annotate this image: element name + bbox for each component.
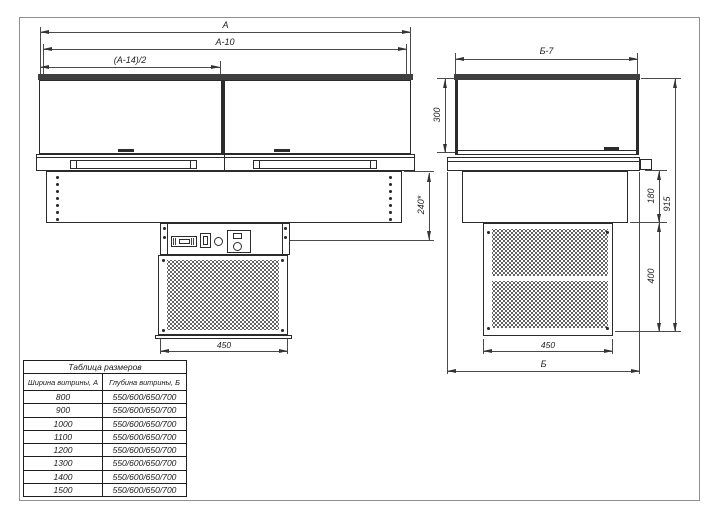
table-row: 1200 550/600/650/700 xyxy=(24,444,186,457)
arrowhead-icon xyxy=(443,79,447,88)
arrowhead-icon xyxy=(402,30,411,34)
arrowhead-icon xyxy=(657,223,661,232)
screw-icon xyxy=(389,197,392,200)
depth-value: 550/600/650/700 xyxy=(103,471,186,483)
depth-value: 550/600/650/700 xyxy=(103,391,186,403)
extension-line xyxy=(447,172,448,374)
table-row: 1400 550/600/650/700 xyxy=(24,471,186,484)
depth-value: 550/600/650/700 xyxy=(103,444,186,456)
extension-line xyxy=(404,171,434,172)
dimension-line-mount-depth xyxy=(429,173,430,240)
controller-display-icon xyxy=(191,238,195,245)
screw-icon xyxy=(389,176,392,179)
glass-box-side xyxy=(455,74,639,155)
control-band-line xyxy=(167,224,168,254)
arrowhead-icon xyxy=(427,173,431,182)
controller-display-icon xyxy=(179,239,190,244)
dimension-line-grille-width xyxy=(160,351,288,352)
arrowhead-icon xyxy=(427,231,431,240)
glass-center-divider xyxy=(221,80,225,154)
depth-value: 550/600/650/700 xyxy=(103,457,186,469)
screw-icon xyxy=(389,204,392,207)
screw-icon xyxy=(606,327,609,330)
dimension-label-grille-width: 450 xyxy=(160,340,288,350)
counter-band-line xyxy=(37,157,414,158)
dimension-line-grille-width xyxy=(483,351,613,352)
table-row: 1500 550/600/650/700 xyxy=(24,484,186,496)
dimension-label-total-height: 915 xyxy=(662,186,672,222)
dimension-label-width: А xyxy=(40,20,411,30)
table-row: 1300 550/600/650/700 xyxy=(24,457,186,470)
glass-front-edge xyxy=(455,80,458,155)
extension-line xyxy=(639,172,640,374)
arrowhead-icon xyxy=(211,65,220,69)
dimension-label-depth: Б xyxy=(447,359,640,369)
grille-mesh xyxy=(492,229,608,276)
screw-icon xyxy=(389,190,392,193)
screw-icon xyxy=(487,327,490,330)
screw-icon xyxy=(56,197,59,200)
glass-top-rail-side xyxy=(454,74,640,80)
slot-end-cap xyxy=(190,161,191,168)
width-value: 1100 xyxy=(24,431,103,443)
arrowhead-icon xyxy=(673,79,677,88)
counter-band-divider xyxy=(224,154,225,171)
width-value: 1500 xyxy=(24,484,103,496)
width-value: 1400 xyxy=(24,471,103,483)
width-value: 1000 xyxy=(24,418,103,430)
indicator-lamp-icon xyxy=(214,237,223,246)
door-track-mark xyxy=(604,147,619,151)
depth-value: 550/600/650/700 xyxy=(103,404,186,416)
screw-icon xyxy=(487,231,490,234)
width-value: 900 xyxy=(24,404,103,416)
control-band-line xyxy=(282,224,283,254)
slot-end-cap xyxy=(370,161,371,168)
dimension-label-condenser-height: 400 xyxy=(646,258,656,294)
size-table-col-width: Ширина витрины, А xyxy=(24,374,103,390)
screw-icon xyxy=(389,218,392,221)
table-row: 1100 550/600/650/700 xyxy=(24,431,186,444)
slot-end-cap xyxy=(259,161,260,168)
screw-icon xyxy=(284,236,287,239)
door-handle-slot xyxy=(70,160,197,169)
dimension-label-body-height: 180 xyxy=(646,178,656,214)
screw-icon xyxy=(56,176,59,179)
dimension-line-half-width xyxy=(40,67,220,68)
screw-icon xyxy=(163,236,166,239)
door-track-mark xyxy=(118,149,134,152)
size-table-title: Таблица размеров xyxy=(24,361,186,374)
screw-icon xyxy=(56,183,59,186)
arrowhead-icon xyxy=(40,30,49,34)
screw-icon xyxy=(389,183,392,186)
screw-icon xyxy=(162,259,165,262)
counter-band-line xyxy=(448,161,639,162)
screw-icon xyxy=(56,190,59,193)
dimension-label-mount-depth: 240* xyxy=(416,185,426,225)
depth-value: 550/600/650/700 xyxy=(103,484,186,496)
arrowhead-icon xyxy=(673,323,677,332)
arrowhead-icon xyxy=(398,47,407,51)
dimension-line-total-height xyxy=(675,79,676,332)
door-track-mark xyxy=(274,149,290,152)
extension-line xyxy=(615,331,681,332)
size-table-col-depth: Глубина витрины, Б xyxy=(103,374,186,390)
arrowhead-icon xyxy=(657,323,661,332)
glass-front-panels xyxy=(39,80,411,154)
dimension-line-depth xyxy=(447,371,640,372)
grille-mesh xyxy=(492,281,608,328)
counter-band-side xyxy=(447,157,640,171)
dimension-label-width-minus10: А-10 xyxy=(43,37,407,47)
dimension-line-condenser-height xyxy=(659,223,660,332)
dimension-label-grille-width: 450 xyxy=(483,340,613,350)
arrowhead-icon xyxy=(443,144,447,153)
screw-icon xyxy=(389,211,392,214)
dimension-line-width xyxy=(40,32,411,33)
screw-icon xyxy=(281,329,284,332)
depth-value: 550/600/650/700 xyxy=(103,431,186,443)
grille-mesh xyxy=(167,260,279,330)
arrowhead-icon xyxy=(455,57,464,61)
screw-icon xyxy=(56,211,59,214)
socket-box-icon xyxy=(233,242,242,251)
grille-base-plate xyxy=(155,335,292,339)
screw-icon xyxy=(56,204,59,207)
arrowhead-icon xyxy=(40,65,49,69)
slot-end-cap xyxy=(76,161,77,168)
extension-line xyxy=(630,222,667,223)
screw-icon xyxy=(162,329,165,332)
socket-box-icon xyxy=(233,233,242,239)
table-row: 800 550/600/650/700 xyxy=(24,391,186,404)
depth-value: 550/600/650/700 xyxy=(103,418,186,430)
table-row: 900 550/600/650/700 xyxy=(24,404,186,417)
width-value: 1300 xyxy=(24,457,103,469)
drop-in-body xyxy=(46,171,402,223)
size-table-header: Ширина витрины, А Глубина витрины, Б xyxy=(24,374,186,391)
rear-bracket xyxy=(640,159,652,170)
extension-line xyxy=(410,27,411,76)
arrowhead-icon xyxy=(657,171,661,180)
screw-icon xyxy=(606,231,609,234)
arrowhead-icon xyxy=(629,57,638,61)
dimension-line-glass-height xyxy=(445,79,446,153)
arrowhead-icon xyxy=(447,369,456,373)
glass-rear-edge xyxy=(636,80,639,155)
screw-icon xyxy=(281,259,284,262)
width-value: 800 xyxy=(24,391,103,403)
table-row: 1000 550/600/650/700 xyxy=(24,418,186,431)
dimension-line-depth-minus7 xyxy=(455,59,638,60)
door-handle-slot xyxy=(253,160,377,169)
extension-line xyxy=(645,170,667,171)
dimension-line-width-minus10 xyxy=(43,49,407,50)
dimension-label-glass-height: 300 xyxy=(432,97,442,133)
screw-icon xyxy=(284,227,287,230)
technical-drawing-sheet: А А-10 (А-14)/2 xyxy=(0,0,720,520)
arrowhead-icon xyxy=(43,47,52,51)
dimension-label-depth-minus7: Б-7 xyxy=(455,46,638,56)
screw-icon xyxy=(56,218,59,221)
screw-icon xyxy=(163,227,166,230)
arrowhead-icon xyxy=(631,369,640,373)
arrowhead-icon xyxy=(657,214,661,223)
drop-in-body-side xyxy=(462,171,628,223)
size-table-title-text: Таблица размеров xyxy=(68,362,141,372)
dimension-label-half-width: (А-14)/2 xyxy=(40,55,220,65)
width-value: 1200 xyxy=(24,444,103,456)
size-table: Таблица размеров Ширина витрины, А Глуби… xyxy=(23,360,187,497)
controller-display-icon xyxy=(173,238,177,245)
power-switch-icon xyxy=(203,236,208,245)
